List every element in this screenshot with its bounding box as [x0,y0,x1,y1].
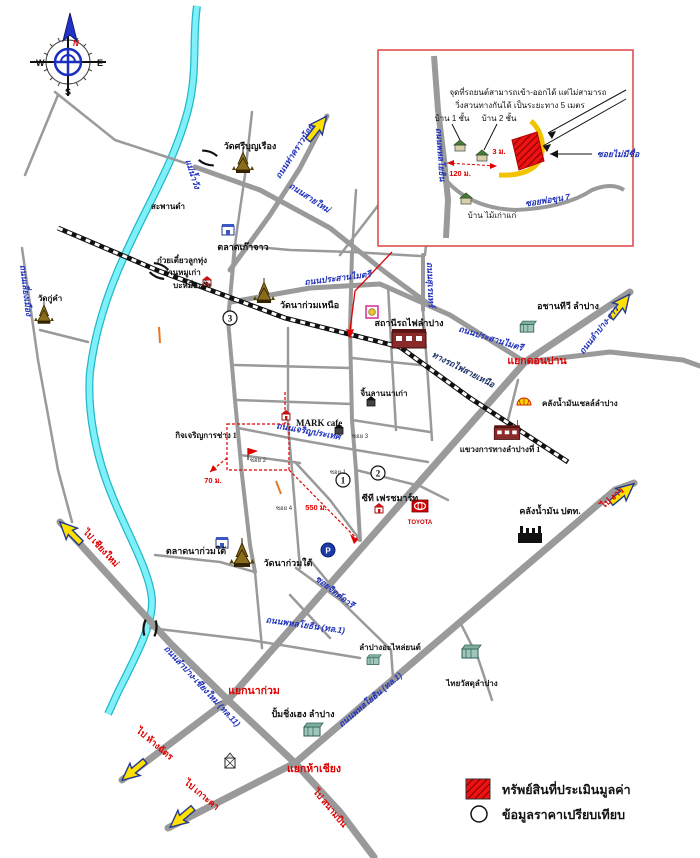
map-page: P 3 1 2 ถนนท่าคราวน้อย ถนนสายใหม่ แม่น้ำ… [0,0,700,858]
gas-station-icon [304,723,323,736]
market-icon [222,224,234,235]
place-label: ตลาดนาก่วมใต้ [166,545,226,556]
compass-n: N [73,39,79,48]
soi-label: ซอย 1 [330,469,347,476]
comparable-number: 3 [228,314,233,324]
junction-label: แยกดอนปาน [507,355,567,367]
place-label: ลำปางอะไหล่ยนต์ [359,642,421,652]
legend-comparable-swatch [471,806,487,822]
inset-distance-label: 3 ม. [492,147,505,156]
place-label: วัดนาก่วมเหนือ [280,299,339,310]
bridge-icon [198,149,217,167]
soi-label: ซอย 2 [250,457,267,464]
place-label: อชานทีวี ลำปาง [537,301,599,311]
place-label: ตลาดเก๊าจาว [217,242,268,252]
road-label: ถนนพหลโยธิน (ทล.1) [336,669,404,729]
place-label: วัดกู่คำ [38,294,62,304]
map-svg: P 3 1 2 ถนนท่าคราวน้อย ถนนสายใหม่ แม่น้ำ… [0,0,700,858]
river-casing [89,6,197,714]
tv-shop-icon [520,321,536,332]
place-label: คลังน้ำมันเชลล์ลำปาง [542,397,618,408]
orange-mark [276,481,281,494]
orange-mark [159,327,160,343]
soi-label: ซอย 4 [276,505,293,512]
road-label: ถนนประสานไมตรี [457,324,526,354]
direction-label: ไป สนามบิน [311,785,351,829]
place-label: บะหมี่ฮะจั่ง [173,279,211,290]
place-label: ฮานหมูเก่า [163,268,200,278]
legend-subject-swatch [466,779,490,799]
inset-note: จุดที่รถยนต์สามารถเข้า-ออกได้ แต่ไม่สามา… [449,86,606,97]
legend-comparable-label: ข้อมูลราคาเปรียบเทียบ [502,808,625,823]
inset-detail-box: จุดที่รถยนต์สามารถเข้า-ออกได้ แต่ไม่สามา… [378,50,640,246]
ptt-letter: P [325,547,331,556]
place-label: คลังน้ำมัน ปตท. [519,504,580,516]
inset-distance-label: 120 ม. [449,169,471,178]
place-label: สะพานดำ [151,202,185,211]
compass-rose: N W E S [30,13,106,97]
oil-depot-icon [518,526,542,543]
place-label: กิจเจริญการช่าง 1 [175,431,237,441]
monument-icon [225,753,235,768]
north-needle-icon [63,13,77,41]
inset-old-house-label: บ้าน ไม้เก่าแก่ [468,211,517,220]
place-label: MARK cafe [296,418,342,428]
compass-e: E [97,58,103,68]
cafe-icon [281,410,291,420]
spare-shop-icon [367,655,381,665]
emblem-icon [366,306,378,318]
place-label: วัดศรีบุญเรือง [224,140,277,152]
shell-logo-icon [517,398,531,405]
route-arrowhead [210,465,217,472]
place-label: แขวงการทางลำปางที่ 1 [460,443,540,454]
legend-subject-label: ทรัพย์สินที่ประเมินมูลค่า [502,781,631,798]
direction-label: ไป เกาะคา [182,776,222,812]
comparable-number: 1 [341,476,346,486]
junction-label: แยกห้าเชียง [287,762,341,775]
road-label: ถนนเลี่ยงเมือง [18,264,35,318]
place-label: วัดนาก่วมใต้ [264,557,313,568]
river-water [89,6,197,714]
inset-soi-label: ซอยไม่มีชื่อ [597,148,640,159]
place-label: ซีที เฟรชมาร์ท [362,492,419,503]
place-label: ก๋วยเตี๋ยวลูกทุ่ง [157,254,207,266]
legend: ทรัพย์สินที่ประเมินมูลค่า ข้อมูลราคาเปรี… [466,779,631,823]
inset-house-label: บ้าน 1 ชั้น [435,112,470,123]
store-icon [462,645,481,658]
soi-label: ซอย 3 [352,433,369,440]
inset-house-label: บ้าน 2 ชั้น [482,112,517,123]
place-label: จิ้นลานนาเก่า [360,387,407,398]
place-label: ไทยวัสดุลำปาง [445,678,498,689]
place-label: สถานีรถไฟลำปาง [374,317,443,328]
freshmart-icon [374,503,384,513]
wang-river [89,6,197,714]
ptt-logo-icon: P [321,543,335,557]
toyota-label: TOYOTA [408,520,433,526]
railway-label: ทางรถไฟสายเหนือ [430,349,497,390]
temple-icon [253,278,275,303]
comparable-number: 2 [376,469,381,479]
compass-s: S [65,87,71,97]
compass-w: W [36,58,45,68]
temple-icon [34,301,54,324]
junction-label: แยกนาก่วม [228,685,280,697]
distance-label: 550 ม. [305,503,327,512]
place-label: ปั้มชิ่งเฮง ลำปาง [271,707,334,719]
temple-icon [232,148,254,173]
distance-label: 70 ม. [204,476,221,485]
inset-note: วิ่งสวนทางกันได้ เป็นระยะทาง 5 เมตร [455,99,586,110]
